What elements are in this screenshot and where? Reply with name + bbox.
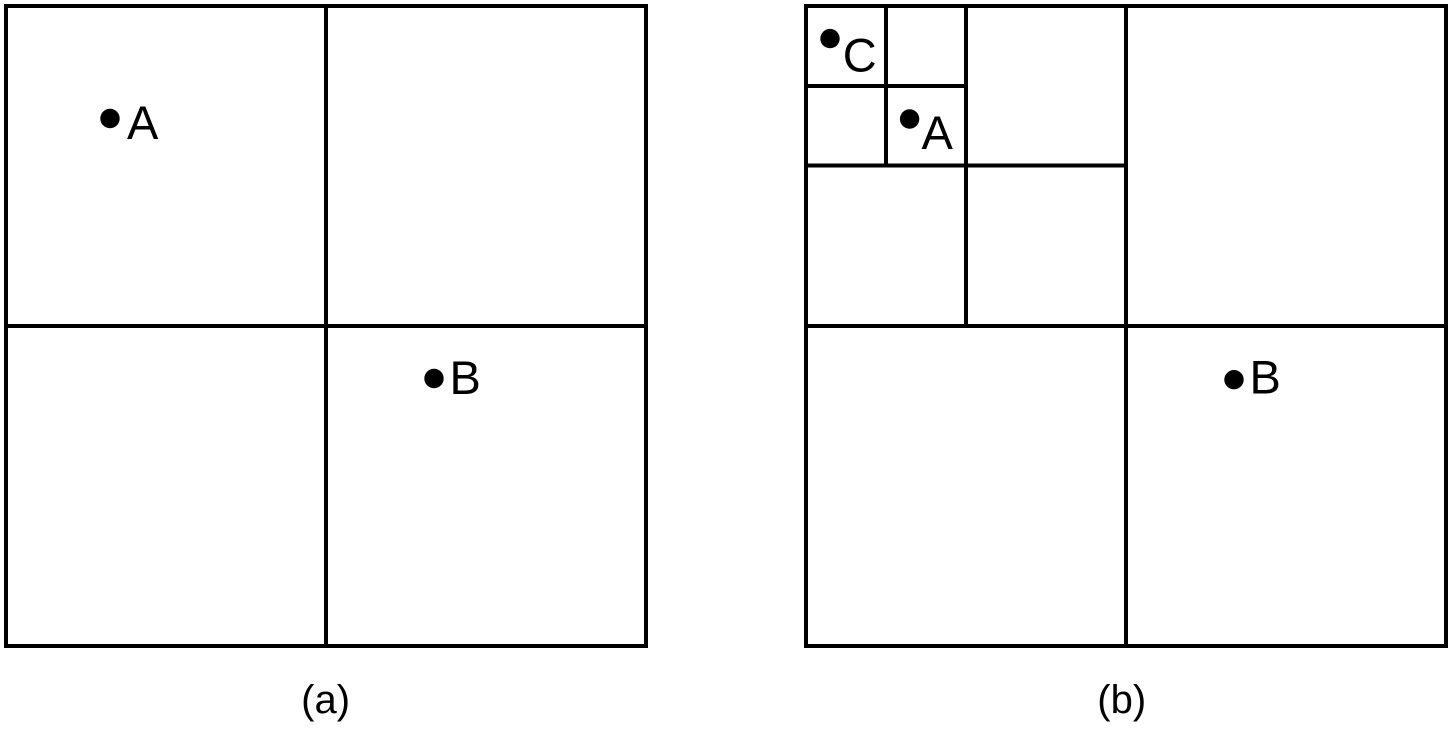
svg-text:B: B: [1250, 350, 1281, 403]
svg-text:A: A: [922, 106, 954, 159]
svg-text:(b): (b): [1097, 678, 1146, 722]
svg-text:C: C: [843, 28, 877, 81]
svg-text:B: B: [450, 351, 481, 404]
svg-text:(a): (a): [301, 678, 350, 722]
svg-text:A: A: [127, 96, 159, 149]
